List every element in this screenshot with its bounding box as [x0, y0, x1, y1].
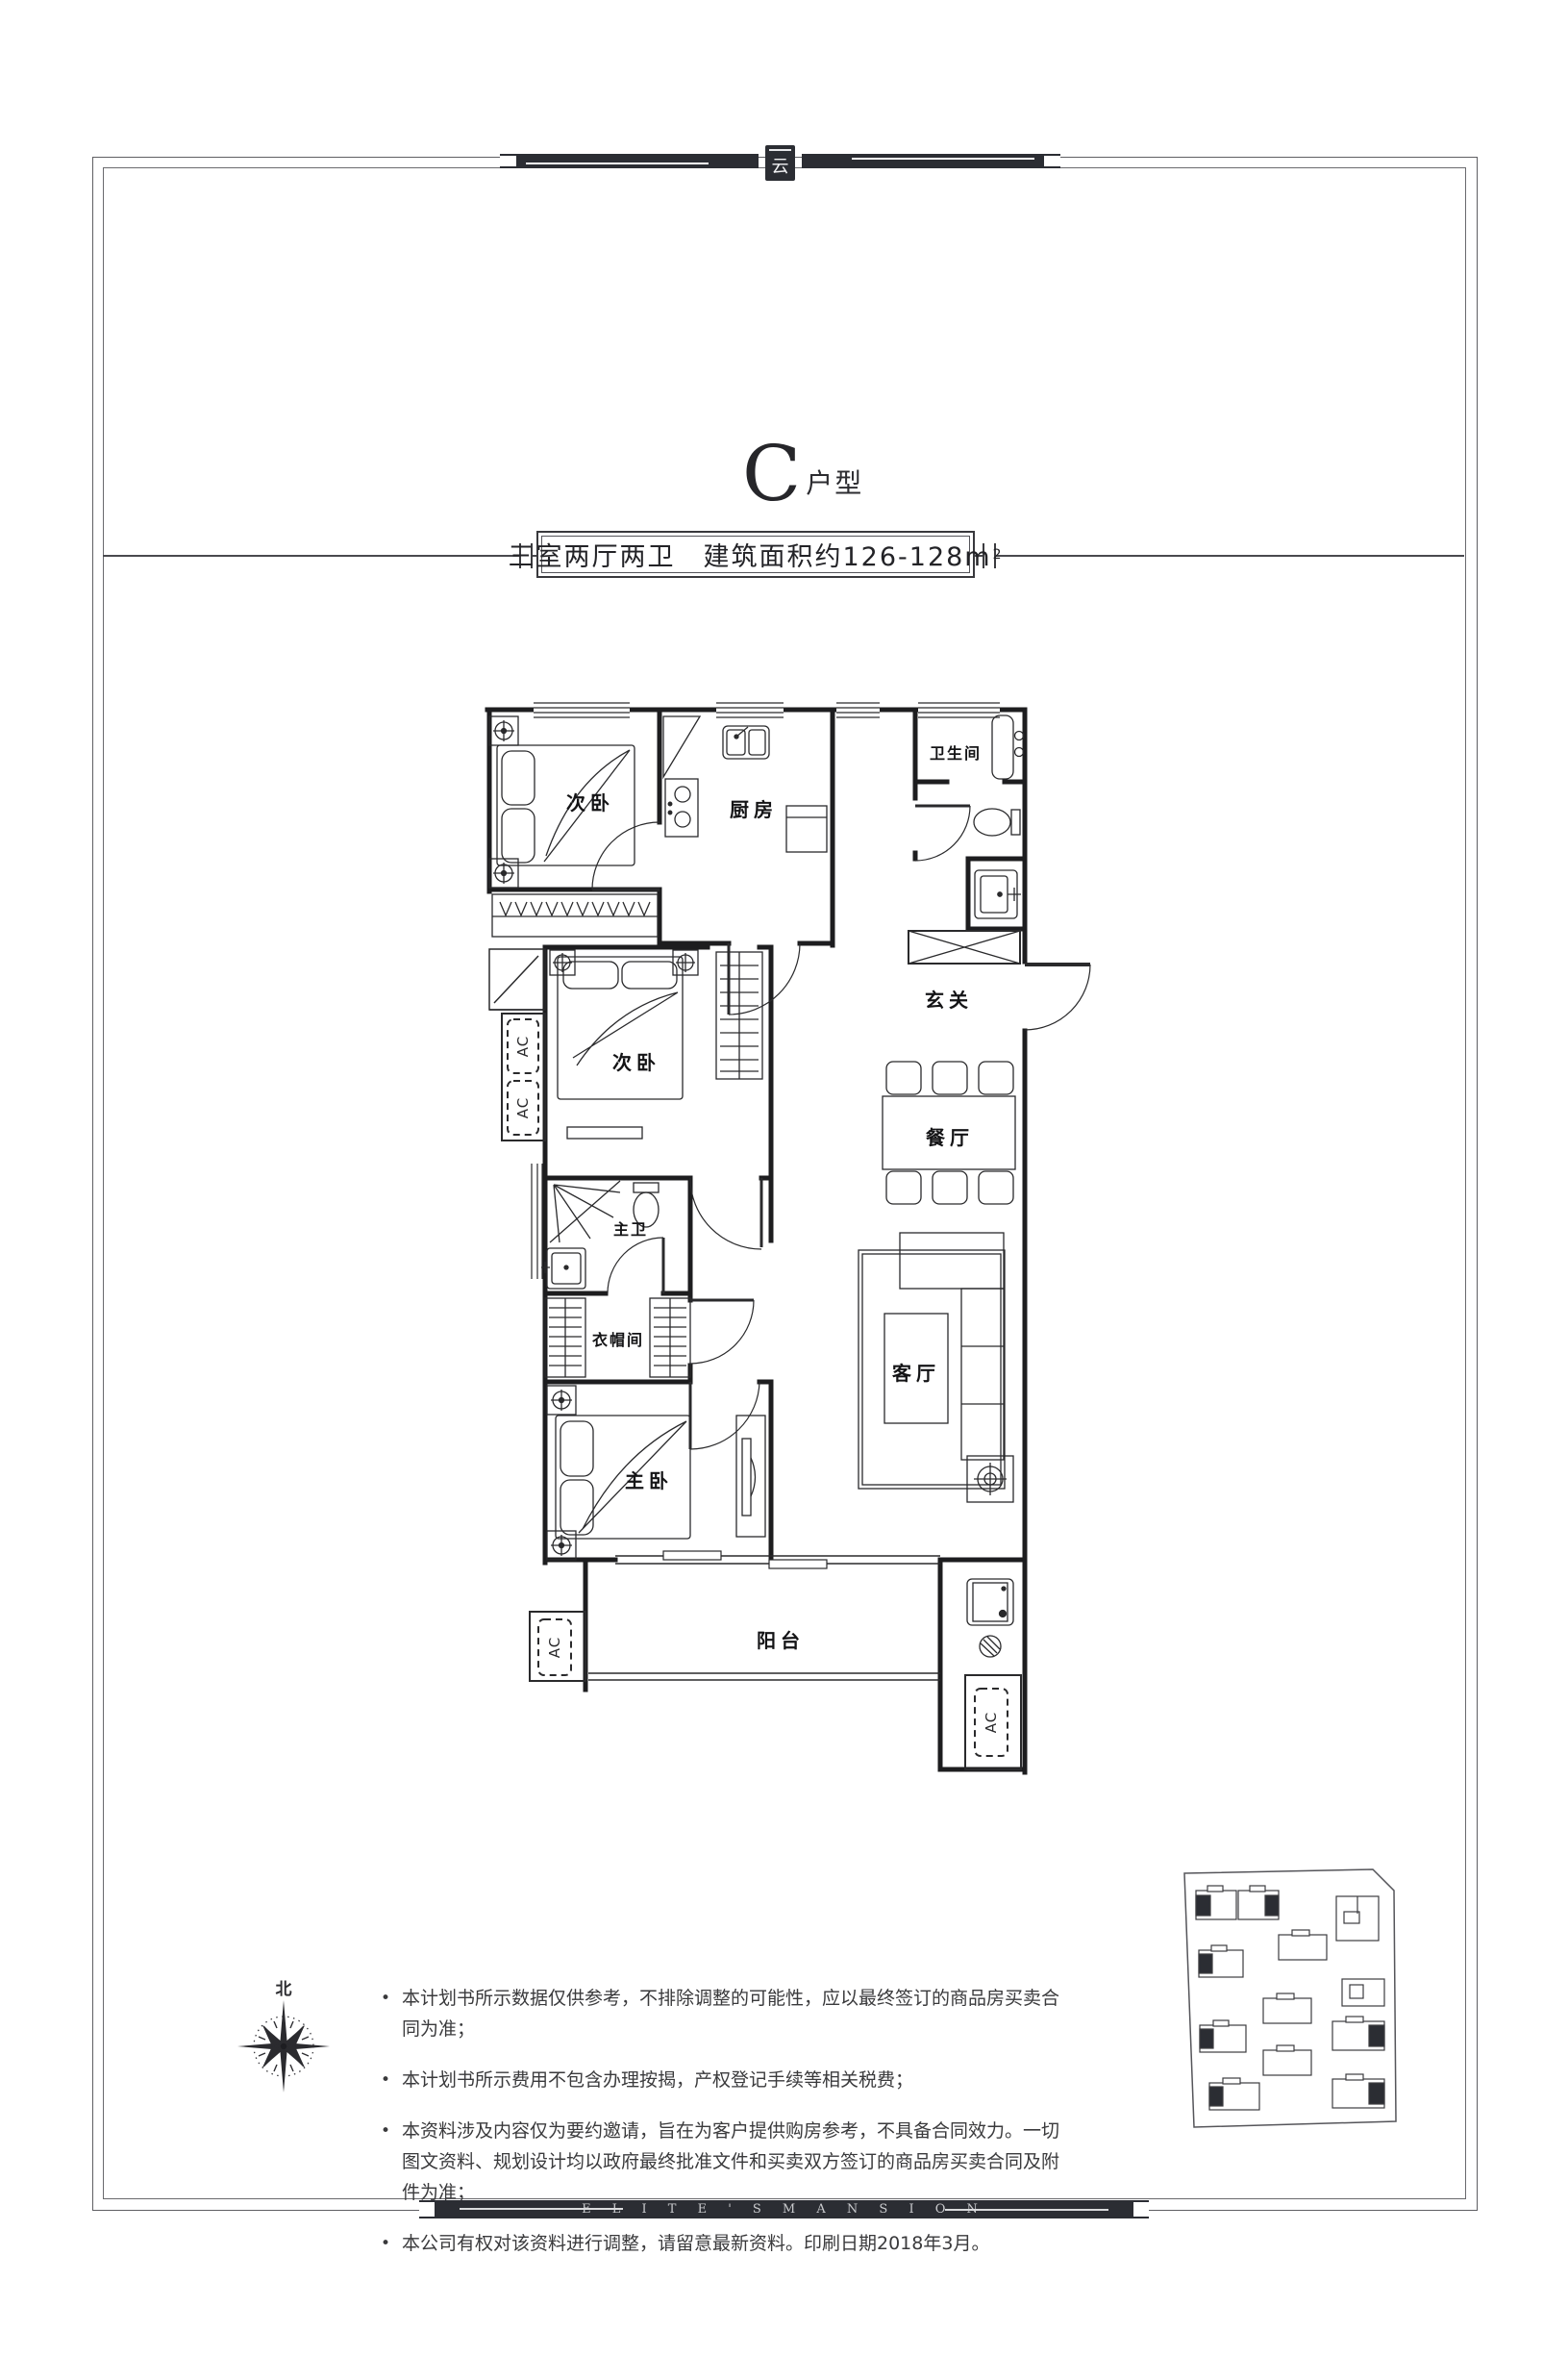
wardrobe	[716, 952, 762, 1079]
compass: 北	[216, 1962, 351, 2130]
shoe-cabinet	[908, 931, 1020, 964]
floor-drain-icon	[980, 1636, 1001, 1657]
note-item: • 本计划书所示费用不包含办理按揭，产权登记手续等相关税费；	[381, 2065, 1065, 2095]
footer-bar-right-cap	[1133, 2200, 1149, 2218]
room-label-dining: 餐厅	[926, 1126, 974, 1149]
unit-subtitle-sup: 2	[993, 547, 1004, 563]
unit-subtitle-text: 三室两厅两卫 建筑面积约126-128m	[508, 536, 991, 573]
room-label-living: 客厅	[891, 1362, 940, 1385]
washing-machine	[967, 1579, 1013, 1625]
top-bar-right	[802, 154, 1044, 168]
kitchen-fixtures	[663, 716, 827, 852]
disclaimer-notes: • 本计划书所示数据仅供参考，不排除调整的可能性，应以最终签订的商品房买卖合同为…	[381, 1983, 1065, 2279]
ac-label: AC	[546, 1637, 563, 1658]
note-text: 本计划书所示费用不包含办理按揭，产权登记手续等相关税费；	[402, 2065, 1065, 2095]
bullet-icon: •	[381, 2228, 402, 2259]
room-label-foyer: 玄关	[925, 989, 973, 1012]
plan-doors	[592, 806, 1090, 1568]
bullet-icon: •	[381, 2116, 402, 2208]
tv-cabinet	[736, 1416, 765, 1537]
bullet-icon: •	[381, 2065, 402, 2095]
ac-label: AC	[514, 1036, 532, 1057]
footer-brand-text: E L I T E ' S M A N S I O N	[582, 2202, 986, 2217]
top-bar-left	[516, 154, 759, 168]
ac-label: AC	[983, 1712, 1000, 1733]
footer-brand-bar: E L I T E ' S M A N S I O N	[435, 2200, 1133, 2218]
unit-title: C 户型	[742, 438, 863, 511]
site-plan-map	[1178, 1861, 1404, 2140]
speaker-icon	[489, 716, 518, 745]
plan-windows	[489, 702, 1000, 1279]
unit-subtitle: 三室两厅两卫 建筑面积约126-128m2	[541, 536, 970, 573]
plan-furniture	[489, 715, 1024, 1657]
footer-bar-left-line	[460, 2208, 623, 2210]
room-label-bathroom: 卫生间	[930, 744, 982, 763]
bullet-icon: •	[381, 1983, 402, 2044]
room-label-kitchen: 厨房	[730, 798, 778, 821]
note-item: • 本资料涉及内容仅为要约邀请，旨在为客户提供购房参考，不具备合同效力。一切图文…	[381, 2116, 1065, 2208]
compass-rose	[237, 2000, 330, 2093]
note-text: 本计划书所示数据仅供参考，不排除调整的可能性，应以最终签订的商品房买卖合同为准；	[402, 1983, 1065, 2044]
bed	[558, 957, 683, 1099]
flyer-page: 云 C 户型 三室两厅两卫 建筑面积约126-128m2	[0, 0, 1568, 2356]
floor-plan: AC AC AC AC 次卧 厨房 卫生间 玄关 次卧 餐厅 主卫 衣帽间 客厅…	[476, 688, 1101, 1789]
room-labels: 次卧 厨房 卫生间 玄关 次卧 餐厅 主卫 衣帽间 客厅 主卧 阳台	[566, 744, 982, 1652]
sofa	[859, 1233, 1005, 1489]
balcony-rail	[588, 1673, 940, 1680]
shower	[550, 1181, 620, 1242]
speaker-icon	[967, 1456, 1013, 1502]
room-label-balcony: 阳台	[757, 1629, 805, 1652]
footer-bar-right-line	[945, 2209, 1108, 2211]
unit-title-suffix: 户型	[806, 463, 863, 501]
top-bar-left-cap	[500, 154, 516, 168]
top-bar-right-cap	[1044, 154, 1060, 168]
room-label-bedroom2a: 次卧	[566, 791, 614, 815]
ac-label: AC	[514, 1097, 532, 1118]
side-table	[567, 1127, 642, 1139]
speaker-icon	[547, 1386, 576, 1415]
note-text: 本公司有权对该资料进行调整，请留意最新资料。印刷日期2018年3月。	[402, 2228, 1065, 2259]
plan-walls	[487, 710, 1025, 1772]
brand-badge-glyph: 云	[772, 153, 789, 178]
unit-subtitle-box: 三室两厅两卫 建筑面积约126-128m2	[536, 531, 975, 578]
room-label-master-bath: 主卫	[613, 1220, 648, 1239]
note-item: • 本公司有权对该资料进行调整，请留意最新资料。印刷日期2018年3月。	[381, 2228, 1065, 2259]
note-item: • 本计划书所示数据仅供参考，不排除调整的可能性，应以最终签订的商品房买卖合同为…	[381, 1983, 1065, 2044]
room-label-closet: 衣帽间	[592, 1331, 644, 1349]
footer-bar-left-cap	[419, 2200, 435, 2218]
site-buildings	[1196, 1886, 1384, 2110]
note-text: 本资料涉及内容仅为要约邀请，旨在为客户提供购房参考，不具备合同效力。一切图文资料…	[402, 2116, 1065, 2208]
room-label-bedroom2b: 次卧	[612, 1051, 660, 1074]
brand-badge-icon: 云	[765, 145, 795, 181]
speaker-icon	[550, 950, 575, 975]
unit-title-letter: C	[742, 438, 801, 511]
room-label-master-bedroom: 主卧	[625, 1469, 673, 1492]
compass-north-label: 北	[276, 1980, 292, 1999]
closet-strip	[492, 894, 658, 937]
sink	[541, 1248, 585, 1289]
